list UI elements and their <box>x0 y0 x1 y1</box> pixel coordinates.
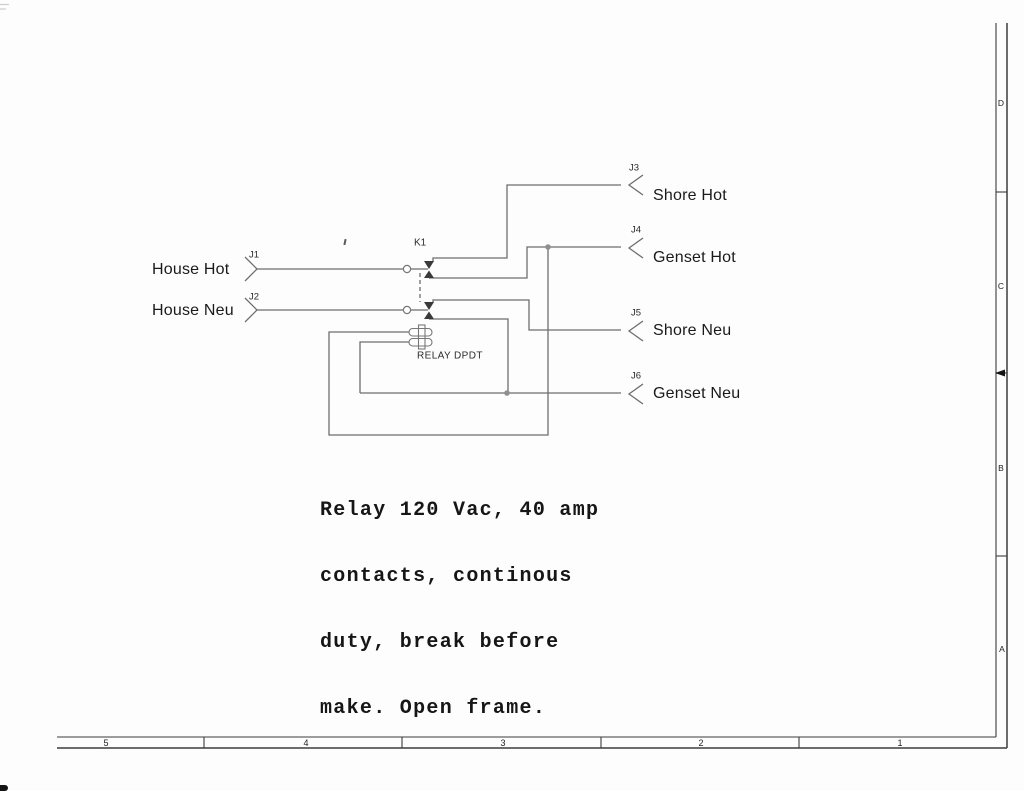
connector-chevron-j1-icon <box>245 257 257 281</box>
wire-pole2-nc-to-j5 <box>433 300 621 330</box>
pole1-nc-contact-icon <box>424 261 434 269</box>
note-line-1: Relay 120 Vac, 40 amp <box>320 500 599 522</box>
relay-designator: K1 <box>414 238 426 249</box>
signal-label-house-neu: House Neu <box>152 302 234 320</box>
schematic-sheet: J1 J2 J3 J4 J5 J6 House Hot House Neu Sh… <box>0 0 1024 791</box>
pole2-no-contact-icon <box>424 312 434 320</box>
note-line-4: make. Open frame. <box>320 698 599 720</box>
connector-chevron-j6-icon <box>629 384 643 404</box>
zone-row-label-c: C <box>998 281 1004 291</box>
zone-col-label-1: 1 <box>897 738 902 748</box>
junction-dot-j4 <box>545 244 551 250</box>
connector-ref-j3: J3 <box>629 163 639 174</box>
connector-ref-j6: J6 <box>631 371 641 382</box>
note-line-2: contacts, continous <box>320 566 599 588</box>
note-line-3: duty, break before <box>320 632 599 654</box>
zone-row-label-d: D <box>998 98 1004 108</box>
signal-label-genset-hot: Genset Hot <box>653 249 736 267</box>
pole1-no-contact-icon <box>424 271 434 279</box>
zone-col-label-2: 2 <box>698 738 703 748</box>
scan-artifact-bottom-left <box>0 785 8 791</box>
pole2-nc-contact-icon <box>424 302 434 310</box>
wire-coil-return <box>360 342 410 393</box>
scan-artifact-top-left <box>0 5 9 10</box>
junction-dot-j6 <box>504 390 510 396</box>
signal-label-genset-neu: Genset Neu <box>653 385 740 403</box>
pole1-common-terminal-icon <box>403 265 410 272</box>
signal-label-shore-neu: Shore Neu <box>653 322 731 340</box>
connector-ref-j2: J2 <box>249 292 259 303</box>
relay-spec-note: Relay 120 Vac, 40 amp contacts, continou… <box>320 456 599 764</box>
wire-pole1-no-to-j4 <box>429 247 621 278</box>
connector-ref-j1: J1 <box>249 250 259 261</box>
connector-chevron-j3-icon <box>629 175 643 195</box>
relay-type-label: RELAY DPDT <box>417 351 483 362</box>
zone-col-label-3: 3 <box>500 738 505 748</box>
wire-coil-feed <box>329 247 548 435</box>
relay-coil-icon <box>409 325 432 349</box>
connector-ref-j5: J5 <box>631 308 641 319</box>
signal-label-house-hot: House Hot <box>152 261 229 279</box>
signal-label-shore-hot: Shore Hot <box>653 187 727 205</box>
zone-row-label-b: B <box>998 463 1004 473</box>
zone-col-label-4: 4 <box>303 738 308 748</box>
zone-col-label-5: 5 <box>103 738 108 748</box>
connector-chevron-j4-icon <box>629 238 643 258</box>
zone-row-label-a: A <box>999 644 1005 654</box>
connector-chevron-j5-icon <box>629 321 643 341</box>
pole2-common-terminal-icon <box>403 306 410 313</box>
connector-ref-j4: J4 <box>631 225 641 236</box>
